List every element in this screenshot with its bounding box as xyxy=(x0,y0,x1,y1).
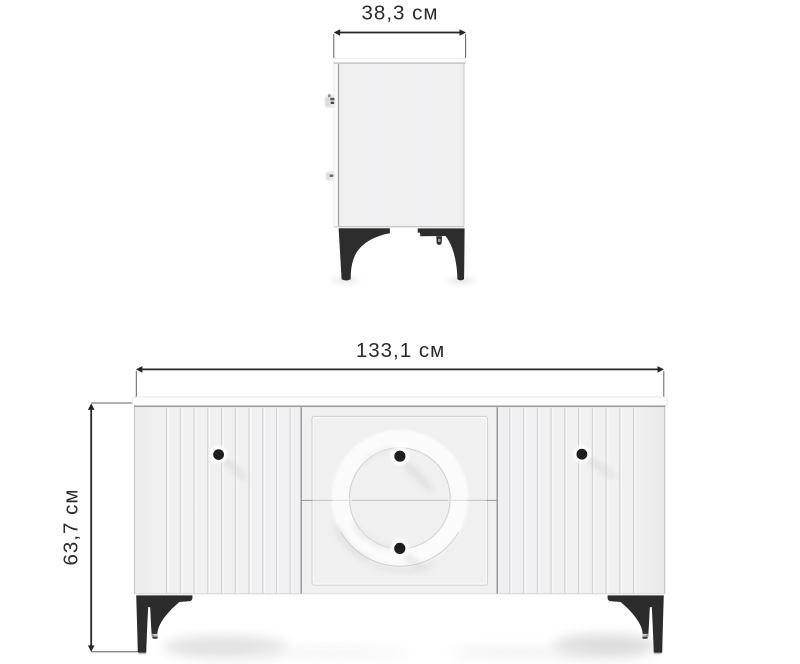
svg-text:63,7 см: 63,7 см xyxy=(60,489,83,566)
svg-text:133,1 см: 133,1 см xyxy=(356,339,445,362)
svg-text:38,3 см: 38,3 см xyxy=(362,2,439,25)
